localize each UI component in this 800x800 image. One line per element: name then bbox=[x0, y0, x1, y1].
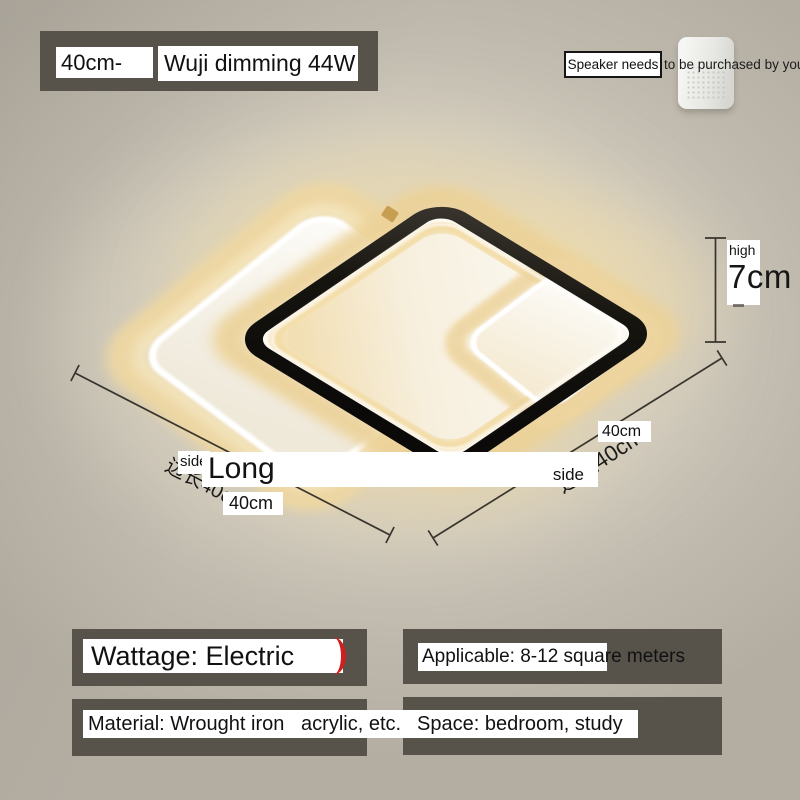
long-label: Long bbox=[208, 452, 275, 486]
height-label: high bbox=[729, 242, 755, 258]
height-value: 7cm bbox=[728, 258, 792, 296]
wattage-label: Wattage: Electric bbox=[83, 639, 343, 673]
size-tag: 40cm- bbox=[56, 47, 153, 78]
material-label: Material: Wrought iron acrylic, etc. bbox=[88, 710, 401, 738]
model-tag: Wuji dimming 44W bbox=[158, 46, 358, 81]
speaker-note-text: to be purchased by yourself bbox=[664, 57, 800, 73]
applicable-label: Applicable: 8-12 square meters bbox=[418, 643, 607, 671]
speaker-image bbox=[678, 37, 734, 109]
side-value-label: 40cm bbox=[598, 421, 651, 442]
long-label-box: Long side bbox=[202, 452, 598, 487]
long-value-label: 40cm bbox=[223, 492, 283, 515]
speaker-note-box: Speaker needs bbox=[564, 51, 662, 78]
height-dash-mark bbox=[733, 304, 744, 307]
product-image: 40cm- Wuji dimming 44W Speaker needs to … bbox=[0, 0, 800, 800]
side-label-right: side bbox=[553, 465, 584, 485]
space-label: Space: bedroom, study bbox=[417, 710, 623, 738]
red-glyph-fragment bbox=[320, 637, 346, 675]
material-space-strip: Material: Wrought iron acrylic, etc. Spa… bbox=[83, 710, 638, 738]
